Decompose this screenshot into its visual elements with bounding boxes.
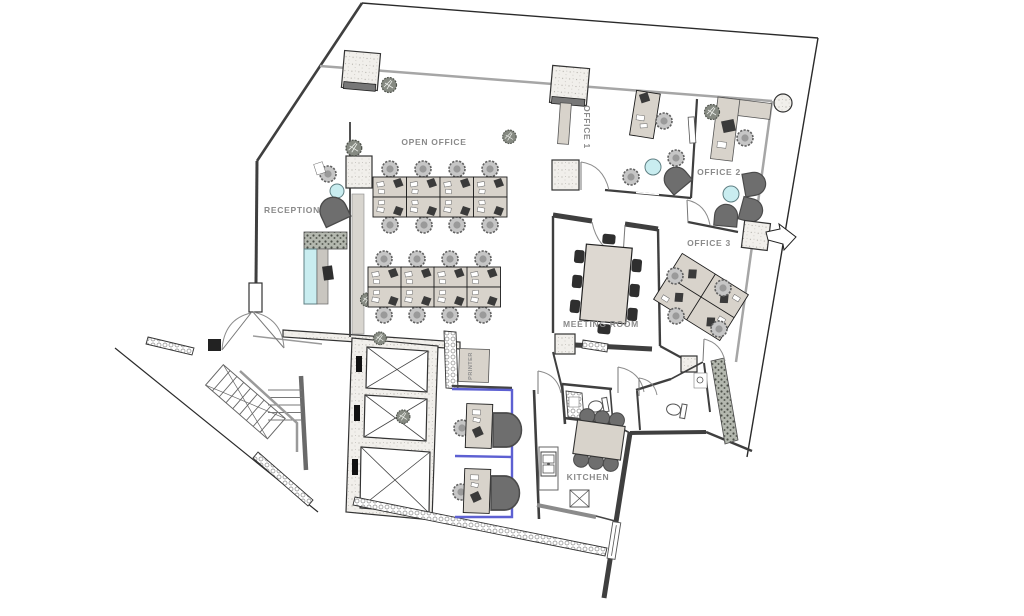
office-chair: [737, 130, 753, 146]
kitchen-table-group: [571, 407, 627, 472]
room-meeting: MEETING ROOM: [553, 215, 660, 354]
plant: [382, 78, 397, 93]
monitor: [322, 265, 334, 280]
booth-desk: [465, 404, 493, 449]
sink: [694, 373, 707, 388]
elevator-door: [352, 459, 358, 475]
staircase: [146, 312, 322, 506]
entry-pillar: [249, 283, 262, 312]
office1-desk: [630, 90, 661, 138]
printer-label: PRINTER: [468, 352, 474, 380]
office1-label: OFFICE 1: [582, 105, 592, 149]
toilet-icon: [665, 401, 687, 418]
armchair: [493, 413, 522, 447]
elevator-door: [354, 405, 360, 421]
armchair: [491, 476, 520, 510]
round-column: [774, 94, 792, 112]
planter-strip: [711, 358, 738, 444]
plant: [374, 332, 387, 345]
plant: [705, 105, 720, 120]
booth-desk: [463, 469, 491, 514]
office3-desk-cluster: [654, 253, 749, 340]
meeting-table: [580, 244, 632, 324]
round-table: [645, 159, 661, 175]
open-office-label: OPEN OFFICE: [401, 137, 466, 147]
kitchen-table: [573, 420, 625, 460]
printer-area: PRINTER: [444, 331, 490, 389]
side-table: [330, 184, 344, 198]
entrance-double-door: [222, 312, 284, 350]
armchair: [714, 203, 739, 227]
room-office-2: OFFICE 2: [687, 97, 772, 232]
round-table: [723, 186, 739, 202]
entry-post: [208, 339, 221, 351]
armchair: [315, 193, 350, 228]
kitchen-sink: [541, 452, 556, 476]
plant: [503, 130, 517, 144]
entry-column: [741, 221, 770, 251]
window: [607, 522, 621, 560]
room-reception: RECEPTION: [264, 122, 372, 337]
office-chair: [656, 113, 672, 129]
armchair: [659, 162, 692, 195]
desk-planter: [304, 232, 347, 249]
room-open-office: OPEN OFFICE: [360, 78, 507, 324]
elevator-door: [356, 356, 362, 372]
room-office-1: OFFICE 1: [503, 90, 697, 198]
reception-label: RECEPTION: [264, 205, 320, 215]
window: [688, 117, 696, 143]
office3-label: OFFICE 3: [687, 238, 731, 248]
reception-desk: [304, 232, 347, 304]
armchair: [738, 197, 765, 225]
column-pillar: [341, 50, 380, 91]
plant: [346, 140, 362, 156]
column-pillar: [549, 65, 589, 106]
meeting-room-label: MEETING ROOM: [563, 319, 639, 329]
plant: [396, 410, 410, 424]
floor-plan-page: RECEPTION OPEN OFFICE PRINTER: [0, 0, 1024, 616]
appliance: [570, 490, 589, 507]
floor-plan-canvas: RECEPTION OPEN OFFICE PRINTER: [0, 0, 1024, 616]
office2-label: OFFICE 2: [697, 167, 741, 177]
kitchen-label: KITCHEN: [567, 472, 610, 482]
armchair: [742, 170, 768, 196]
